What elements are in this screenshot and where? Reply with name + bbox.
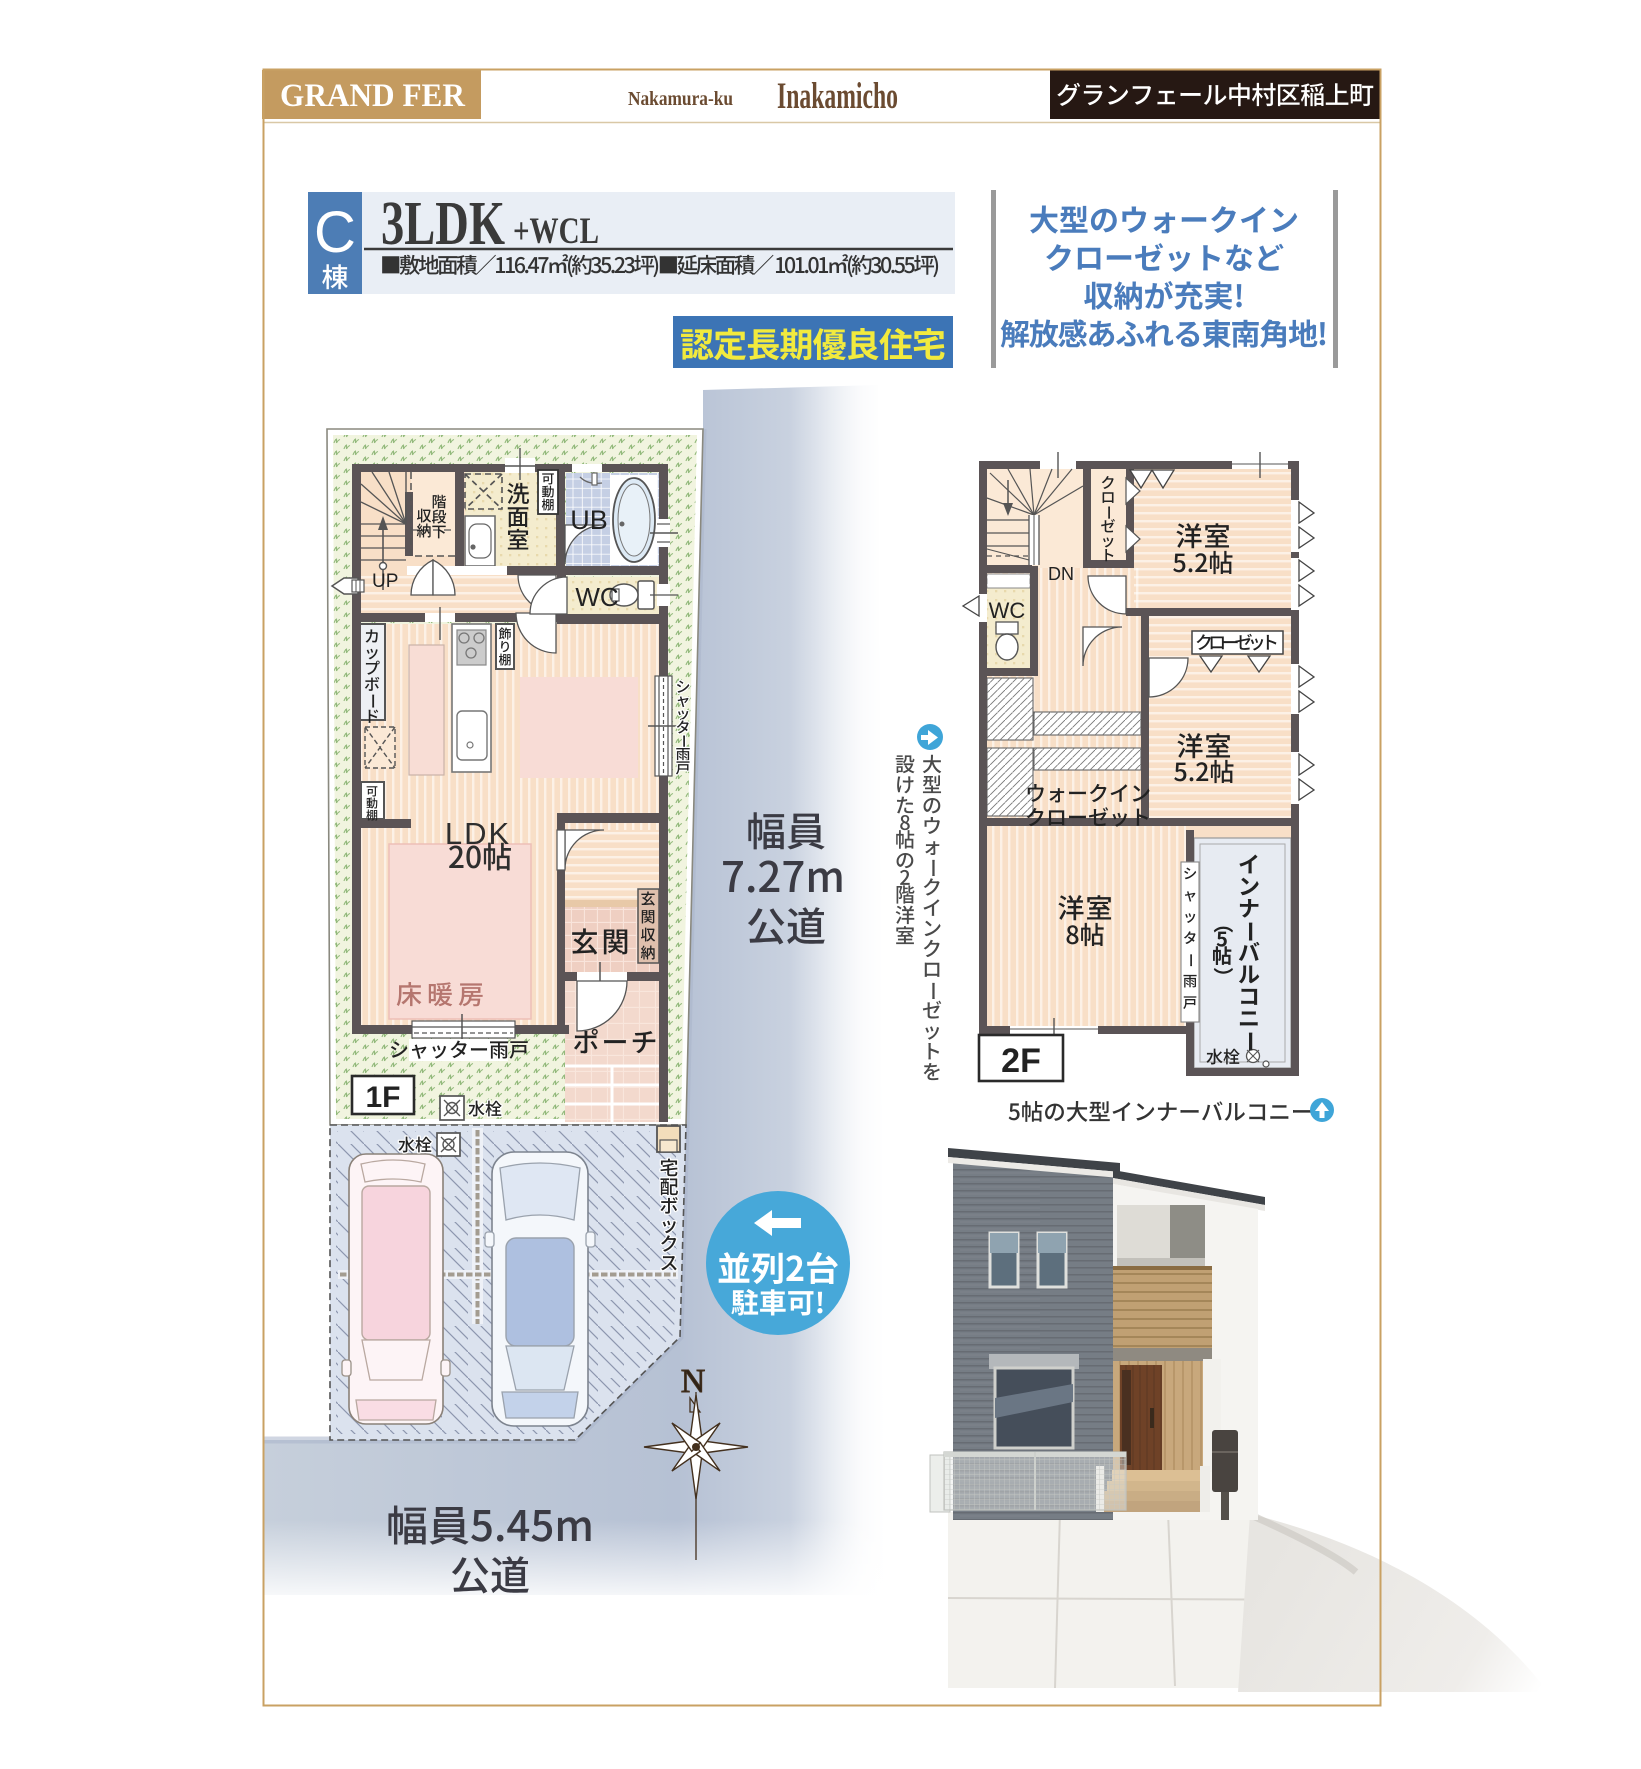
svg-text:DN: DN (1048, 564, 1074, 584)
svg-text:N: N (681, 1363, 706, 1400)
svg-text:GRAND FER: GRAND FER (280, 78, 466, 114)
svg-text:UB: UB (570, 505, 608, 535)
svg-text:C: C (314, 200, 356, 265)
svg-text:+WCL: +WCL (513, 211, 599, 252)
svg-text:WC: WC (575, 582, 618, 612)
svg-text:1F: 1F (365, 1081, 400, 1114)
svg-text:WC: WC (989, 598, 1026, 623)
svg-text:Nakamura-ku: Nakamura-ku (628, 88, 733, 110)
svg-text:2F: 2F (1001, 1042, 1041, 1080)
svg-text:UP: UP (372, 571, 398, 592)
svg-text:Inakamicho: Inakamicho (777, 76, 898, 117)
